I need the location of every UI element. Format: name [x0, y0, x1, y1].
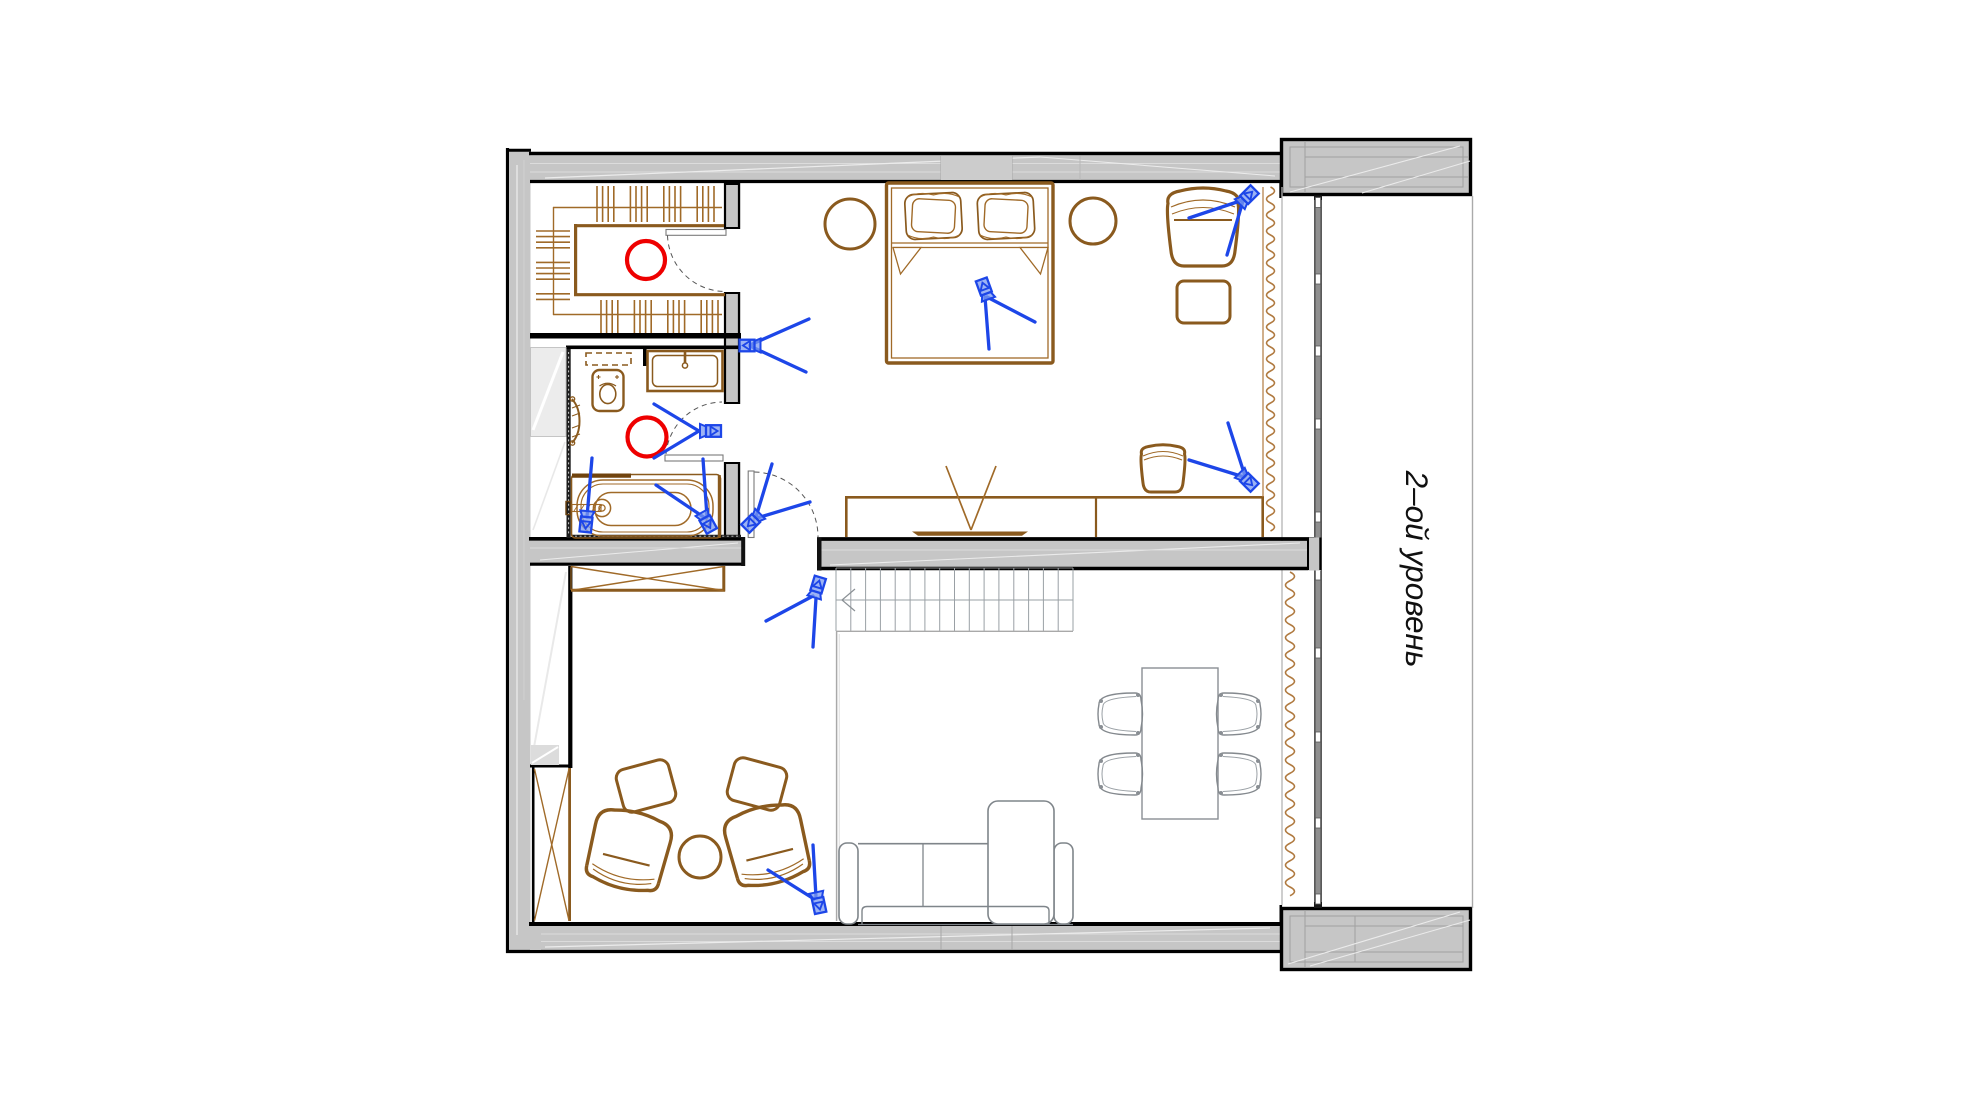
svg-text:2–ой уровень: 2–ой уровень: [1399, 470, 1435, 668]
